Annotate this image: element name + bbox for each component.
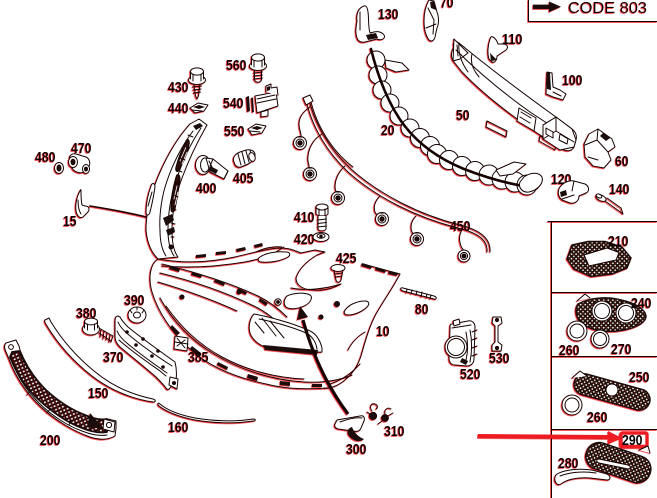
svg-text:270: 270 [611,342,632,358]
svg-text:440: 440 [168,101,189,117]
svg-text:530: 530 [489,351,510,367]
svg-text:200: 200 [40,433,61,449]
svg-text:240: 240 [631,296,652,312]
svg-text:260: 260 [559,343,580,359]
svg-text:400: 400 [196,181,217,197]
svg-text:160: 160 [168,420,189,436]
svg-text:250: 250 [629,370,650,386]
svg-text:70: 70 [440,0,454,12]
svg-text:390: 390 [124,293,145,309]
svg-text:410: 410 [294,210,315,226]
svg-text:100: 100 [562,73,583,89]
svg-text:480: 480 [35,150,56,166]
svg-text:20: 20 [381,123,395,139]
svg-text:290: 290 [622,433,643,449]
svg-text:130: 130 [378,7,399,23]
svg-text:10: 10 [376,324,390,340]
svg-text:550: 550 [224,124,245,140]
svg-text:60: 60 [615,154,629,170]
svg-text:540: 540 [223,96,244,112]
svg-text:150: 150 [88,386,109,402]
svg-text:260: 260 [587,410,608,426]
svg-text:140: 140 [609,182,630,198]
svg-text:CODE 803: CODE 803 [568,0,647,17]
svg-text:405: 405 [233,171,254,187]
svg-text:560: 560 [226,58,247,74]
svg-text:420: 420 [294,232,315,248]
svg-text:430: 430 [168,80,189,96]
svg-text:385: 385 [188,350,209,366]
svg-text:50: 50 [456,108,470,124]
svg-text:300: 300 [346,442,367,458]
svg-text:370: 370 [103,350,124,366]
svg-text:80: 80 [415,302,429,318]
svg-text:210: 210 [608,234,629,250]
svg-text:15: 15 [63,214,77,230]
svg-text:520: 520 [460,367,481,383]
svg-text:310: 310 [384,424,405,440]
